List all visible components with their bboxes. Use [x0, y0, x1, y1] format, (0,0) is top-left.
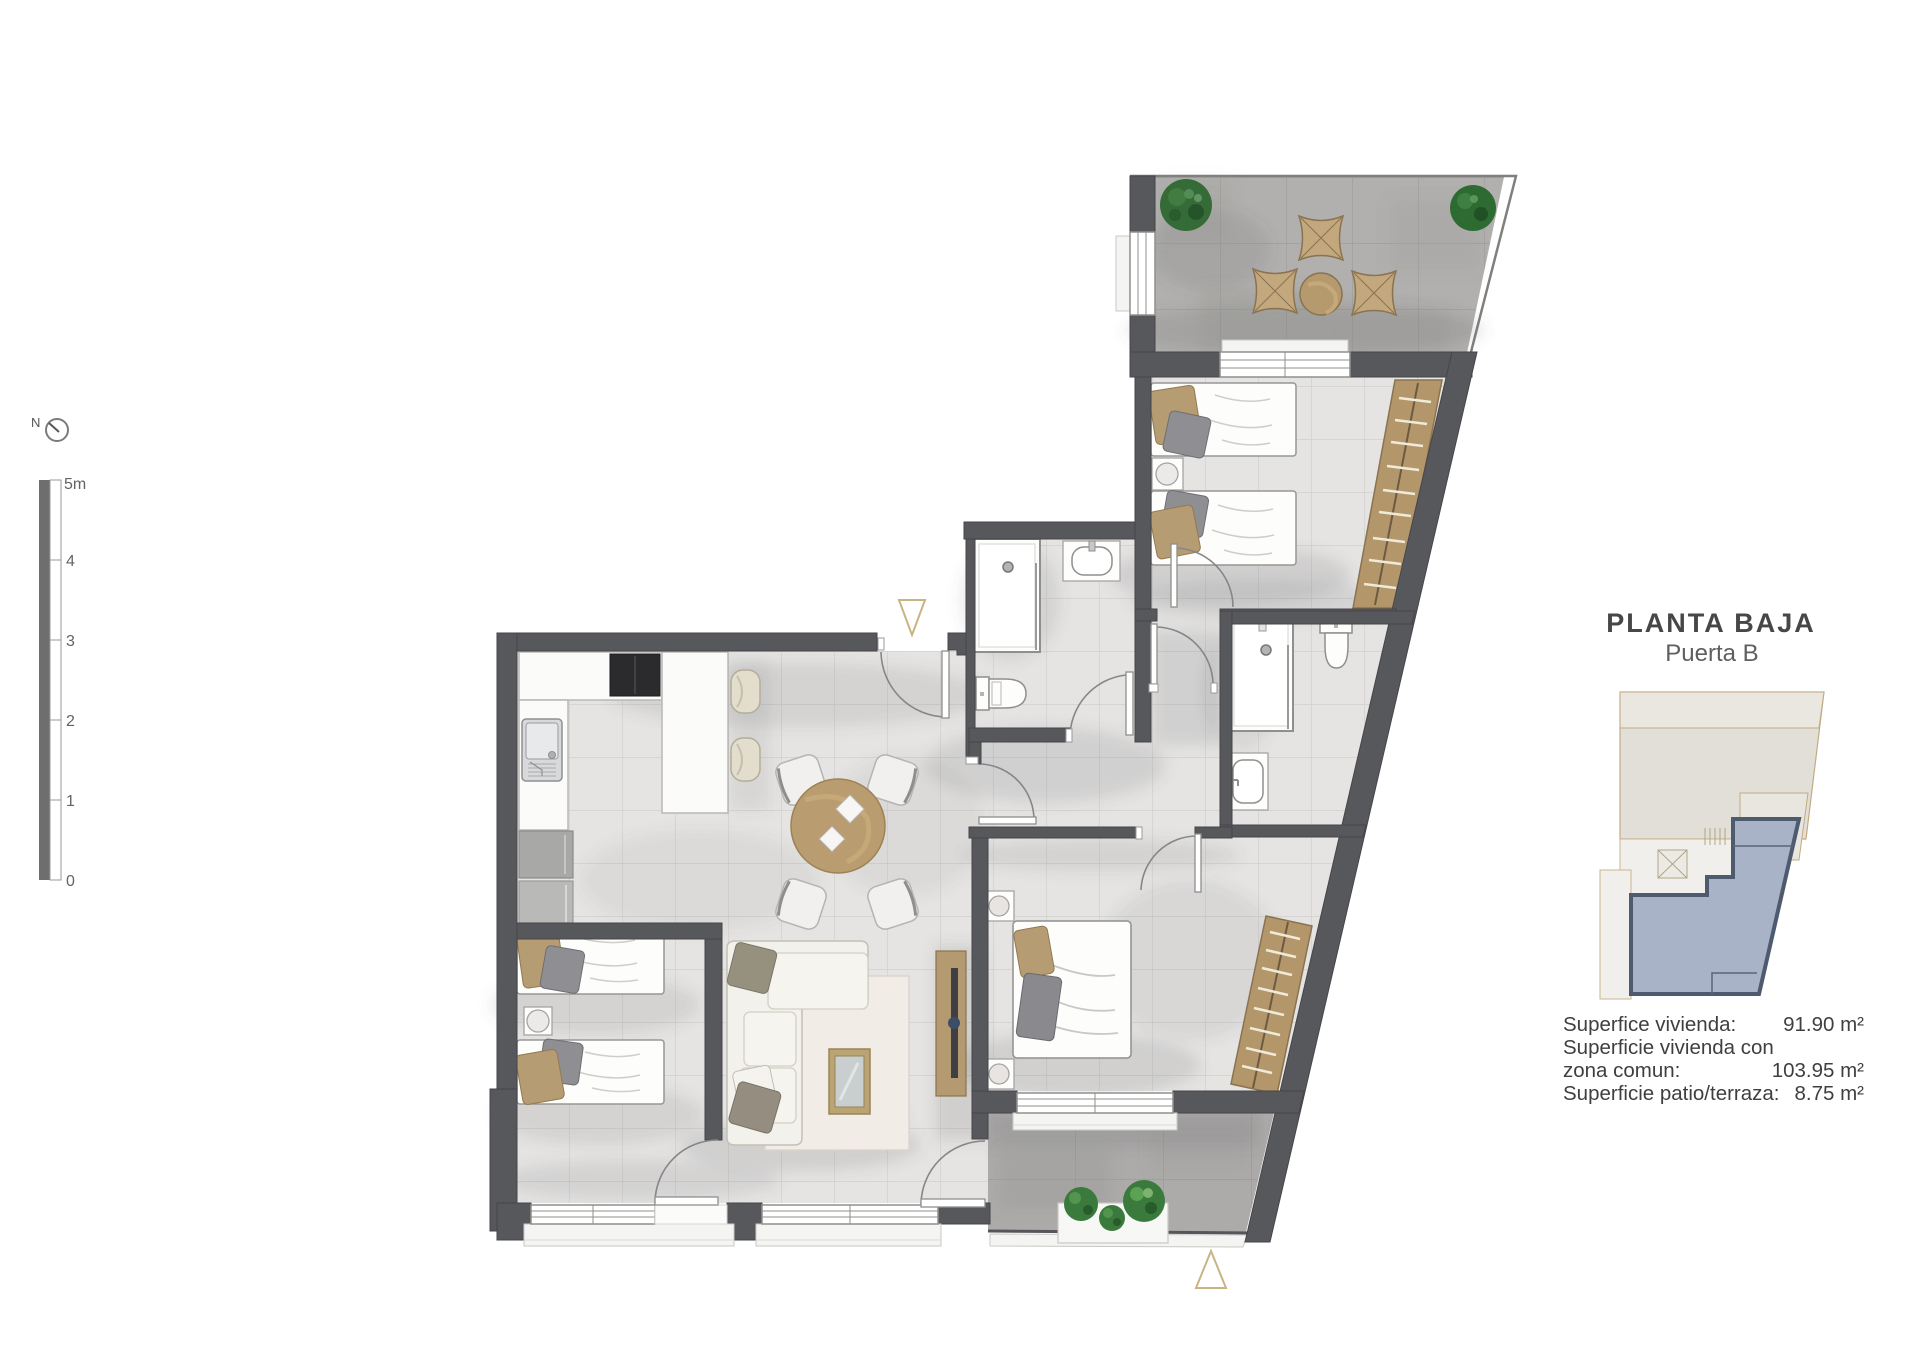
- svg-text:8.75 m²: 8.75 m²: [1795, 1082, 1865, 1105]
- svg-text:1: 1: [66, 793, 75, 810]
- svg-text:4: 4: [66, 553, 75, 570]
- svg-text:Superfice vivienda:: Superfice vivienda:: [1563, 1013, 1736, 1036]
- svg-text:Superficie patio/terraza:: Superficie patio/terraza:: [1563, 1082, 1780, 1105]
- svg-text:3: 3: [66, 633, 75, 650]
- svg-text:5m: 5m: [64, 476, 86, 493]
- svg-text:103.95 m²: 103.95 m²: [1772, 1059, 1864, 1082]
- svg-text:PLANTA BAJA: PLANTA BAJA: [1606, 608, 1816, 638]
- svg-text:zona comun:: zona comun:: [1563, 1059, 1680, 1082]
- svg-text:Puerta B: Puerta B: [1665, 640, 1758, 667]
- svg-text:0: 0: [66, 873, 75, 890]
- svg-text:Superficie vivienda con: Superficie vivienda con: [1563, 1036, 1774, 1059]
- svg-text:91.90 m²: 91.90 m²: [1783, 1013, 1864, 1036]
- svg-text:N: N: [31, 415, 40, 430]
- svg-text:2: 2: [66, 713, 75, 730]
